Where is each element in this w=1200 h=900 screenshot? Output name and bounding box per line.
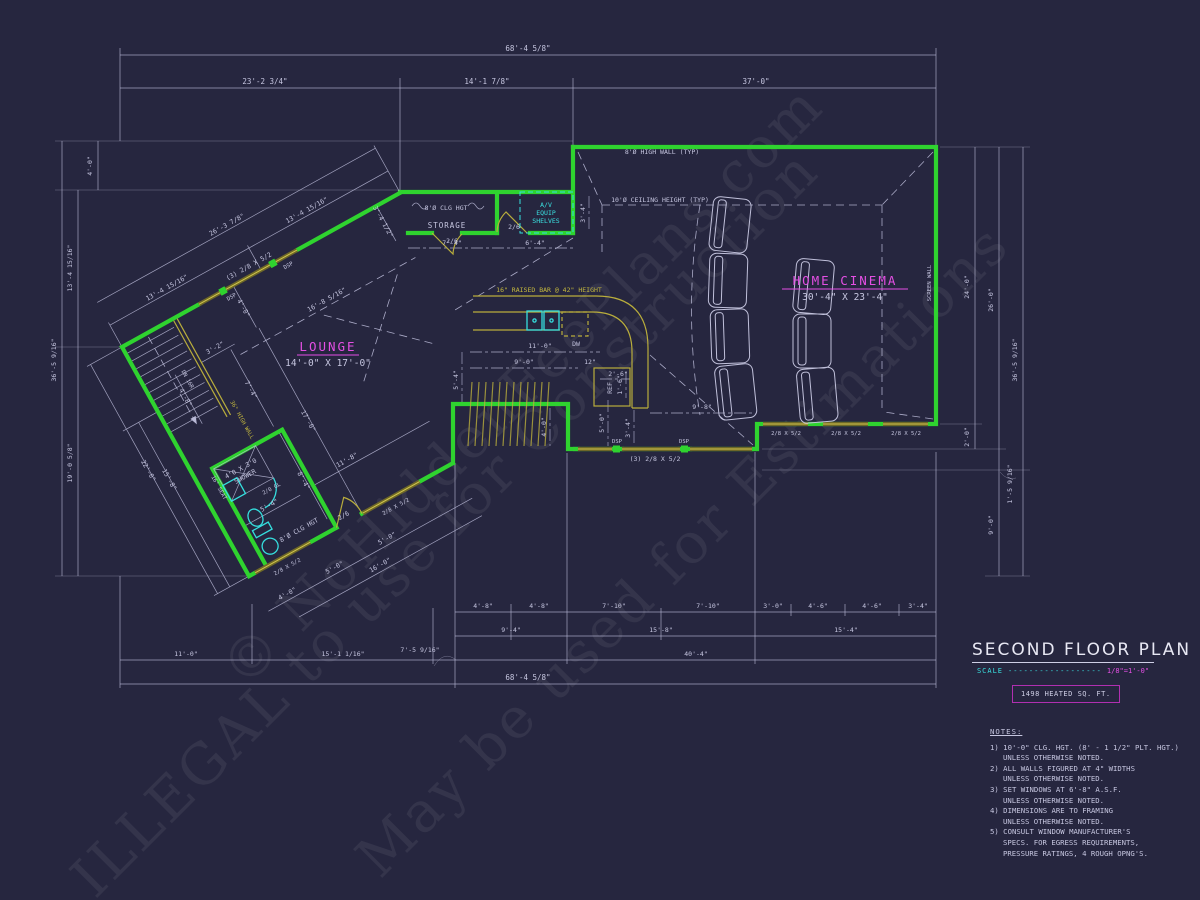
dw-label: DW bbox=[572, 340, 580, 348]
dim: 7'-10" bbox=[602, 602, 625, 610]
sink bbox=[259, 535, 281, 557]
room-label-lounge: LOUNGE bbox=[299, 339, 356, 354]
dsp-label: DSP bbox=[612, 439, 623, 445]
dim: 4'-0" bbox=[235, 298, 251, 319]
dim: 5'-0" bbox=[598, 413, 606, 433]
dim: 16'-8 5/16" bbox=[306, 286, 348, 314]
dim: 9'-8" bbox=[692, 403, 712, 411]
note-line: SPECS. FOR EGRESS REQUIREMENTS, bbox=[990, 838, 1190, 849]
stair-arrow bbox=[190, 416, 199, 426]
dim: 17'-0" bbox=[299, 409, 317, 433]
dim: 26'-0" bbox=[987, 288, 995, 311]
dim: 68'-4 5/8" bbox=[505, 44, 550, 53]
dim: 4'-6" bbox=[808, 602, 828, 610]
clg-hgt-label: 8'Ø CLG HGT bbox=[424, 204, 467, 212]
dim: 15'-8" bbox=[649, 626, 672, 634]
dsp-marker bbox=[613, 446, 620, 453]
dim: 37'-0" bbox=[742, 77, 769, 86]
dim: 7'-4" bbox=[243, 379, 259, 400]
dim: 11'-0" bbox=[528, 342, 551, 350]
dim: 4'-8" bbox=[529, 602, 549, 610]
dim: 22'-0" bbox=[139, 459, 157, 483]
dim: 3'-4" bbox=[908, 602, 928, 610]
dim: 3'-4" bbox=[579, 203, 587, 223]
dim: 4'-8" bbox=[177, 387, 193, 408]
dim: 36'-5 9/16" bbox=[1011, 338, 1019, 381]
dim: 36'-5 9/16" bbox=[50, 338, 58, 381]
dim: 68'-4 5/8" bbox=[505, 673, 550, 682]
note-line: 1) 10'-0" CLG. HGT. (8' - 1 1/2" PLT. HG… bbox=[990, 743, 1190, 754]
ref-label: REF bbox=[606, 382, 614, 394]
dim: 12" bbox=[584, 358, 596, 366]
dim: 9'-0" bbox=[514, 358, 534, 366]
room-size-cinema: 30'-4" X 23'-4" bbox=[802, 292, 888, 303]
sheet-title: SECOND FLOOR PLAN bbox=[972, 640, 1154, 663]
half-wall-label: 36" HIGH WALL bbox=[228, 400, 254, 441]
scale-row: SCALE ------------------ 1/8"=1'-0" bbox=[972, 667, 1154, 675]
dim: 40'-4" bbox=[684, 650, 707, 658]
dim: 9'-4" bbox=[501, 626, 521, 634]
window-label: (3) 2/8 X 5/2 bbox=[630, 455, 681, 463]
dim: 4'-0" bbox=[86, 156, 94, 176]
dim: 23'-2 3/4" bbox=[242, 77, 287, 86]
dim: 11'-0" bbox=[174, 650, 197, 658]
ceiling-label: 10'Ø CEILING HEIGHT (TYP) bbox=[611, 196, 709, 204]
note-line: 2) ALL WALLS FIGURED AT 4" WIDTHS bbox=[990, 764, 1190, 775]
dim: 3'-0" bbox=[763, 602, 783, 610]
watermark-line1: © NoHiddenFeePlans.com bbox=[209, 73, 836, 700]
notes-block: NOTES: 1) 10'-0" CLG. HGT. (8' - 1 1/2" … bbox=[990, 727, 1190, 859]
dim: 7'-10" bbox=[696, 602, 719, 610]
note-line: UNLESS OTHERWISE NOTED. bbox=[990, 796, 1190, 807]
dim: 11'-8" bbox=[335, 451, 359, 469]
dim: 4'-6" bbox=[862, 602, 882, 610]
door-label: 2/6 bbox=[508, 223, 520, 231]
note-line: UNLESS OTHERWISE NOTED. bbox=[990, 753, 1190, 764]
dim: 1'-5 9/16" bbox=[1006, 464, 1014, 503]
high-wall-label: 8'Ø HIGH WALL (TYP) bbox=[625, 148, 699, 156]
dim: 19'-0 5/8" bbox=[66, 443, 74, 482]
dim: 13'-4 15/16" bbox=[144, 273, 189, 303]
dim: 3'-4 1/2" bbox=[371, 204, 395, 239]
dim: 24'-0" bbox=[963, 275, 971, 298]
glass-door-label: 2/0 GL bbox=[262, 481, 283, 496]
dsp-marker bbox=[681, 446, 688, 453]
dim: 2'-0" bbox=[963, 427, 971, 447]
dsp-label: DSP bbox=[283, 261, 295, 271]
dim: 15'-1 1/16" bbox=[321, 650, 364, 658]
av-label: A/V bbox=[540, 201, 552, 209]
note-line: PRESSURE RATINGS, 4 ROUGH OPNG'S. bbox=[990, 849, 1190, 860]
heated-area-badge: 1498 HEATED SQ. FT. bbox=[1012, 685, 1120, 703]
note-line: UNLESS OTHERWISE NOTED. bbox=[990, 774, 1190, 785]
title-block: SECOND FLOOR PLAN SCALE ----------------… bbox=[972, 640, 1154, 703]
av-label: EQUIP bbox=[536, 209, 556, 217]
dim: 26'-3 7/8" bbox=[208, 212, 246, 238]
room-label-cinema: HOME CINEMA bbox=[793, 273, 898, 288]
dim: 9'-0" bbox=[987, 515, 995, 535]
bath-fixtures bbox=[214, 446, 306, 559]
dim: 5'-4" bbox=[452, 370, 460, 390]
notes-heading: NOTES: bbox=[990, 727, 1190, 738]
dim: 3'-4" bbox=[624, 418, 632, 438]
room-label-storage: STORAGE bbox=[428, 221, 467, 230]
dim: 13'-4 15/16" bbox=[66, 245, 74, 292]
dim: 6'-4" bbox=[525, 239, 545, 247]
dim: 4'-8" bbox=[473, 602, 493, 610]
window-label: 2/8 X 5/2 bbox=[891, 431, 921, 437]
dim: 7'-4" bbox=[442, 239, 462, 247]
dsp-label: DSP bbox=[679, 439, 690, 445]
note-line: 5) CONSULT WINDOW MANUFACTURER'S bbox=[990, 827, 1190, 838]
scale-value: 1/8"=1'-0" bbox=[1107, 667, 1149, 675]
note-line: UNLESS OTHERWISE NOTED. bbox=[990, 817, 1190, 828]
dim: 15'-4" bbox=[834, 626, 857, 634]
room-size-lounge: 14'-0" X 17'-0" bbox=[285, 358, 371, 369]
window-label: 2/8 X 5/2 bbox=[831, 431, 861, 437]
raised-bar-label: 16" RAISED BAR @ 42" HEIGHT bbox=[496, 286, 602, 294]
scale-dots: ------------------ bbox=[1008, 667, 1102, 675]
scale-label: SCALE bbox=[977, 667, 1003, 675]
screen-wall-label: SCREEN WALL bbox=[927, 264, 933, 301]
dim: 3'-2" bbox=[205, 340, 226, 356]
dim: 14'-1 7/8" bbox=[464, 77, 509, 86]
note-line: 3) SET WINDOWS AT 6'-8" A.S.F. bbox=[990, 785, 1190, 796]
dim: 15'-8" bbox=[160, 468, 178, 492]
note-line: 4) DIMENSIONS ARE TO FRAMING bbox=[990, 806, 1190, 817]
dim: 1'-6" bbox=[616, 375, 624, 395]
dim: 4'-0" bbox=[540, 417, 548, 437]
dim: 5'-4" bbox=[259, 497, 280, 513]
dim: 7'-5 9/16" bbox=[400, 646, 439, 654]
dim: 13'-4 15/16" bbox=[284, 195, 329, 225]
watermark: © NoHiddenFeePlans.com ILLEGAL to use fo… bbox=[59, 73, 1022, 900]
floor-plan-sheet: © NoHiddenFeePlans.com ILLEGAL to use fo… bbox=[0, 0, 1200, 900]
window-label: 2/8 X 5/2 bbox=[771, 431, 801, 437]
av-label: SHELVES bbox=[532, 217, 559, 225]
